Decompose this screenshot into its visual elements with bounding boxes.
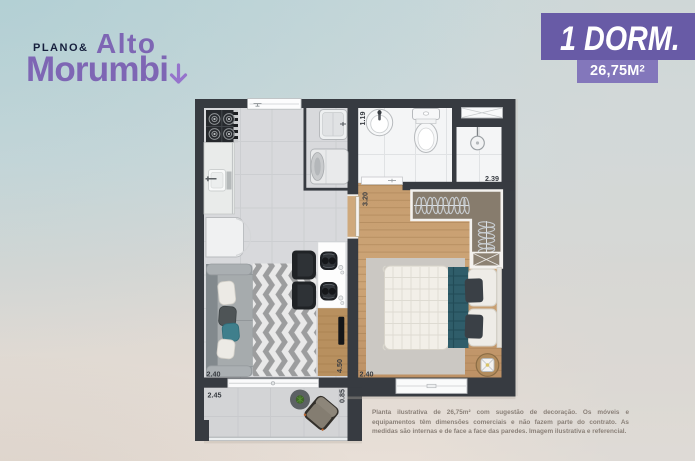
svg-text:2.40: 2.40 — [360, 369, 374, 378]
svg-text:2.39: 2.39 — [485, 174, 499, 183]
svg-text:3.20: 3.20 — [361, 192, 370, 206]
svg-text:1.19: 1.19 — [358, 112, 367, 126]
svg-text:2.45: 2.45 — [208, 391, 222, 400]
svg-text:0.85: 0.85 — [338, 389, 347, 403]
svg-text:4.50: 4.50 — [335, 359, 344, 373]
svg-text:2.40: 2.40 — [207, 369, 221, 378]
